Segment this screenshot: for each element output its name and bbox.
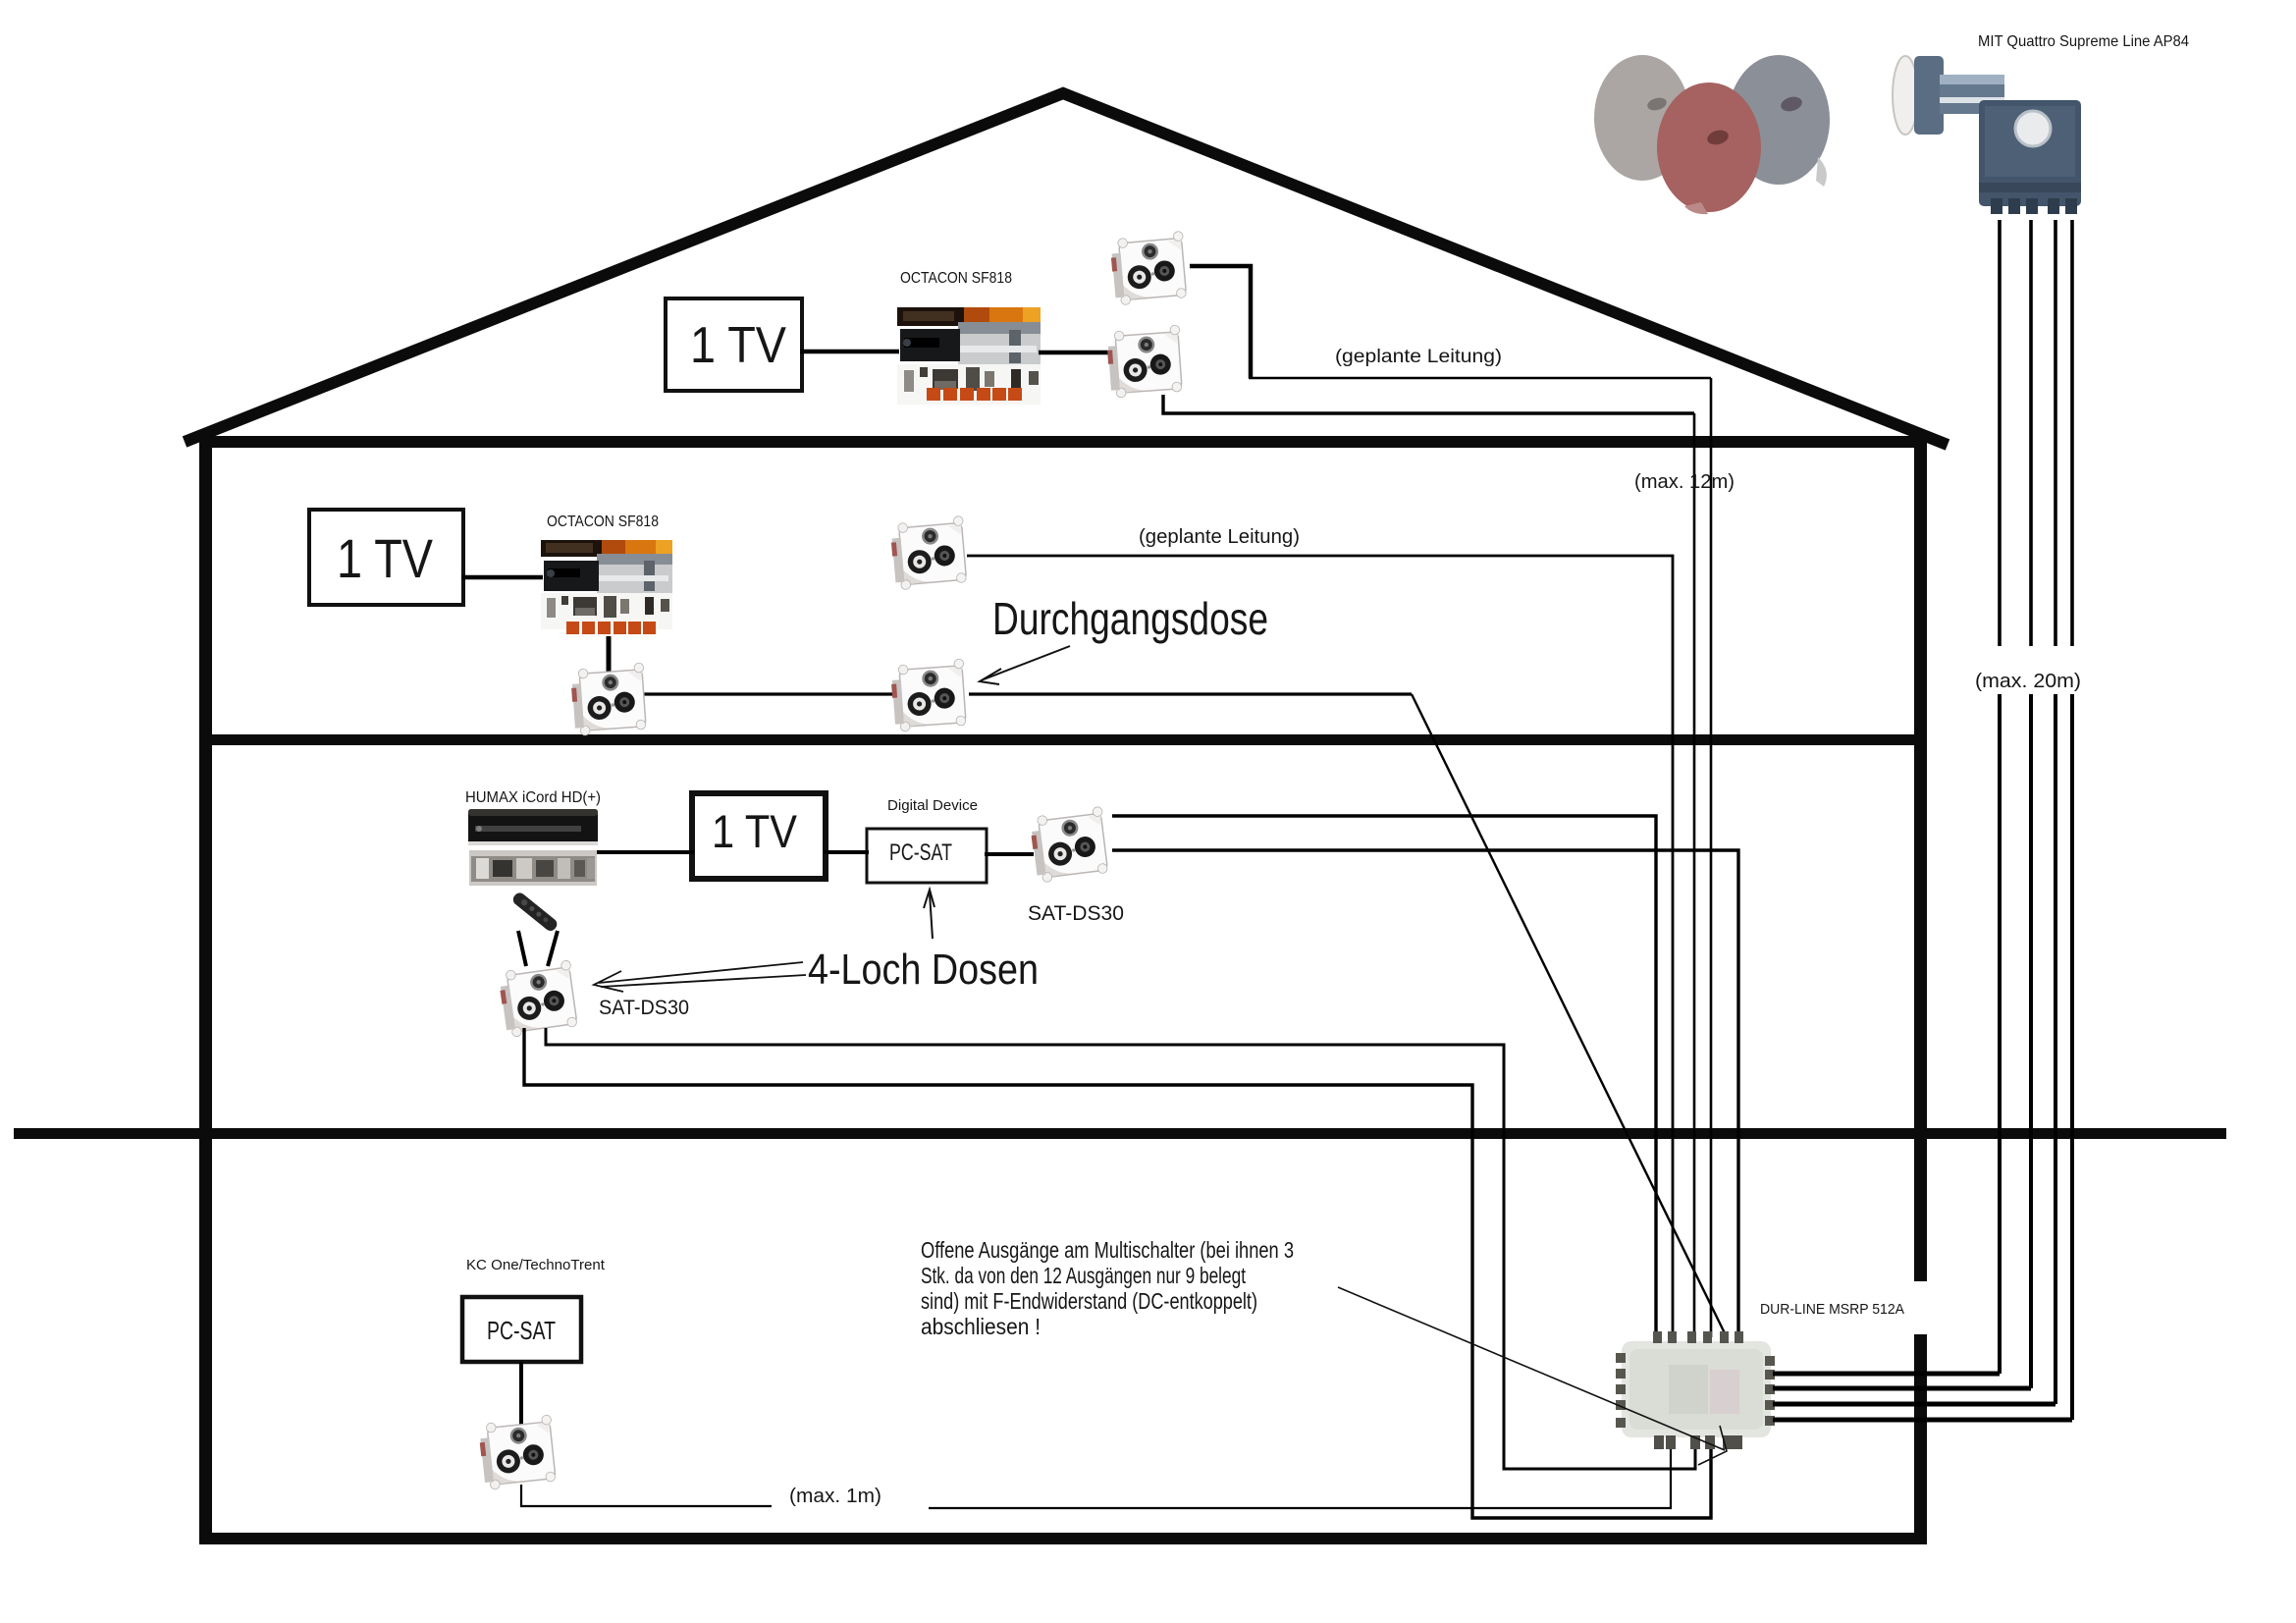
svg-text:Durchgangsdose: Durchgangsdose [992, 593, 1268, 644]
svg-text:abschliesen !: abschliesen ! [921, 1314, 1041, 1339]
svg-text:1 TV: 1 TV [690, 317, 786, 374]
svg-text:(max. 20m): (max. 20m) [1975, 671, 2081, 692]
svg-text:sind) mit F-Endwiderstand (DC-: sind) mit F-Endwiderstand (DC-entkoppelt… [921, 1288, 1257, 1314]
svg-text:OCTACON SF818: OCTACON SF818 [547, 514, 659, 530]
svg-text:(geplante Leitung): (geplante Leitung) [1335, 347, 1502, 367]
svg-text:1 TV: 1 TV [712, 805, 798, 857]
svg-text:HUMAX iCord HD(+): HUMAX iCord HD(+) [465, 789, 601, 806]
svg-text:SAT-DS30: SAT-DS30 [1028, 902, 1124, 925]
svg-text:MIT Quattro Supreme Line AP84: MIT Quattro Supreme Line AP84 [1978, 33, 2189, 50]
svg-text:SAT-DS30: SAT-DS30 [599, 997, 689, 1019]
svg-text:Stk. da von den 12 Ausgängen n: Stk. da von den 12 Ausgängen nur 9 beleg… [921, 1263, 1246, 1288]
svg-text:(max. 12m): (max. 12m) [1634, 471, 1735, 493]
svg-text:DUR-LINE MSRP 512A: DUR-LINE MSRP 512A [1760, 1301, 1904, 1318]
svg-text:4-Loch Dosen: 4-Loch Dosen [808, 946, 1039, 994]
svg-text:1 TV: 1 TV [337, 527, 434, 589]
svg-text:Offene Ausgänge am Multischalt: Offene Ausgänge am Multischalter (bei ih… [921, 1237, 1294, 1263]
svg-text:(max. 1m): (max. 1m) [789, 1486, 881, 1507]
svg-text:KC One/TechnoTrent: KC One/TechnoTrent [466, 1258, 605, 1273]
svg-text:PC-SAT: PC-SAT [889, 839, 952, 866]
svg-text:Digital Device: Digital Device [887, 798, 978, 814]
svg-text:PC-SAT: PC-SAT [487, 1316, 556, 1345]
svg-text:OCTACON SF818: OCTACON SF818 [900, 270, 1012, 287]
svg-text:(geplante Leitung): (geplante Leitung) [1139, 526, 1300, 548]
